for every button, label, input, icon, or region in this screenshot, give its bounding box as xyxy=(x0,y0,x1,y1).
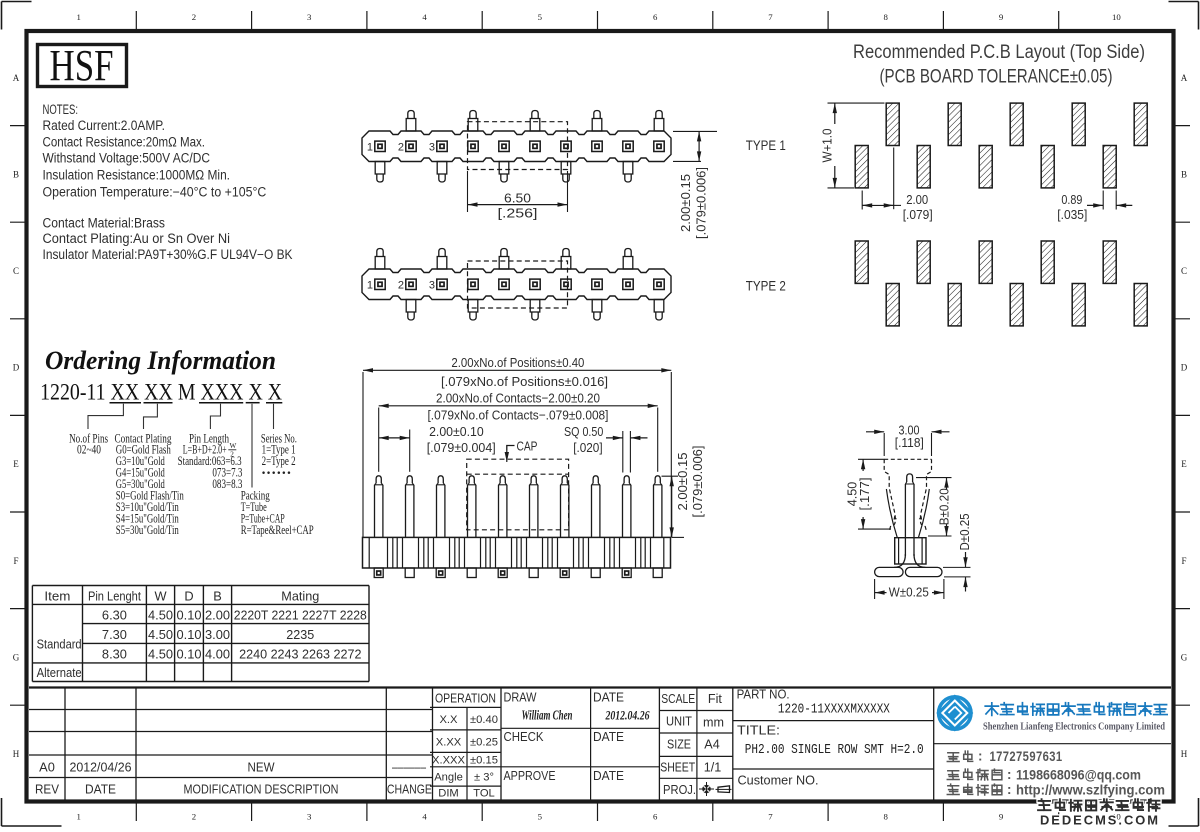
svg-text:B±0.20: B±0.20 xyxy=(938,488,952,525)
svg-text:X.XX: X.XX xyxy=(436,737,462,749)
svg-text:A: A xyxy=(13,73,20,83)
svg-text:TOL: TOL xyxy=(473,788,495,800)
svg-text:0.10: 0.10 xyxy=(177,646,202,661)
svg-text:8: 8 xyxy=(884,812,889,822)
svg-text:B: B xyxy=(213,589,222,604)
svg-text:3: 3 xyxy=(307,12,312,22)
svg-text:1/1: 1/1 xyxy=(704,761,722,775)
svg-text:OPERATION: OPERATION xyxy=(435,692,496,706)
svg-text:2.00xNo.of Contacts−2.00±0.20: 2.00xNo.of Contacts−2.00±0.20 xyxy=(436,390,600,405)
svg-text:±0.15: ±0.15 xyxy=(470,755,498,767)
svg-text:(PCB BOARD TOLERANCE±0.05): (PCB BOARD TOLERANCE±0.05) xyxy=(880,67,1113,88)
svg-text:3.00: 3.00 xyxy=(899,423,920,437)
svg-text:DATE: DATE xyxy=(85,782,116,797)
svg-text:7.30: 7.30 xyxy=(102,627,127,642)
svg-text:SIZE: SIZE xyxy=(667,738,691,752)
svg-text:NEW: NEW xyxy=(248,760,276,775)
svg-text:DATE: DATE xyxy=(593,729,624,744)
svg-text:5: 5 xyxy=(538,812,543,822)
svg-text:2: 2 xyxy=(398,142,404,154)
svg-text:±0.25: ±0.25 xyxy=(470,737,498,749)
svg-text:MODIFICATION DESCRIPTION: MODIFICATION DESCRIPTION xyxy=(184,782,339,797)
svg-text:Mating: Mating xyxy=(281,589,319,604)
svg-text:––––––: –––––– xyxy=(392,760,427,775)
svg-text:PROJ.: PROJ. xyxy=(663,783,696,797)
svg-text::: : xyxy=(978,749,983,764)
svg-text:[.079]: [.079] xyxy=(903,208,933,222)
svg-text:[.079±0.006]: [.079±0.006] xyxy=(691,446,705,518)
svg-text:CHECK: CHECK xyxy=(504,729,544,744)
svg-text:6.30: 6.30 xyxy=(102,608,127,623)
svg-text:R=Tape&Reel+CAP: R=Tape&Reel+CAP xyxy=(241,523,314,537)
svg-text:4.50: 4.50 xyxy=(148,627,173,642)
svg-text:Operation Temperature:−40°C to: Operation Temperature:−40°C to +105°C xyxy=(43,184,267,199)
svg-text:[.079xNo.of Contacts−.079±0.00: [.079xNo.of Contacts−.079±0.008] xyxy=(428,408,609,423)
svg-text:4.50: 4.50 xyxy=(148,608,173,623)
svg-text:DATE: DATE xyxy=(593,690,624,705)
svg-text:1198668096@qq.com: 1198668096@qq.com xyxy=(1016,766,1141,782)
svg-text:W: W xyxy=(154,589,167,604)
svg-text:D±0.25: D±0.25 xyxy=(958,513,972,550)
svg-text:W+1.0: W+1.0 xyxy=(821,128,835,162)
svg-text:TYPE 1: TYPE 1 xyxy=(746,138,786,153)
svg-text:NOTES:: NOTES: xyxy=(43,102,79,117)
svg-text:Shenzhen Lianfeng Electronics: Shenzhen Lianfeng Electronics Company Li… xyxy=(983,721,1165,732)
svg-text:2240 2243 2263 2272: 2240 2243 2263 2272 xyxy=(239,646,361,661)
svg-text:[.079±0.006]: [.079±0.006] xyxy=(695,167,709,239)
svg-text:William Chen: William Chen xyxy=(522,708,573,723)
svg-text:4.50: 4.50 xyxy=(148,646,173,661)
svg-text:7: 7 xyxy=(768,812,773,822)
svg-text:Recommended P.C.B Layout (Top: Recommended P.C.B Layout (Top Side) xyxy=(853,42,1145,63)
svg-text:X.XXX: X.XXX xyxy=(432,755,465,767)
svg-text:http://www.szlfying.com: http://www.szlfying.com xyxy=(1016,782,1165,797)
svg-text:8: 8 xyxy=(884,12,889,22)
svg-text:Contact Resistance:20mΩ Max.: Contact Resistance:20mΩ Max. xyxy=(43,134,206,149)
svg-text:1220-11 XX XX M XXX X X: 1220-11 XX XX M XXX X X xyxy=(40,379,282,404)
svg-text:Insulation Resistance:1000MΩ M: Insulation Resistance:1000MΩ Min. xyxy=(43,167,231,182)
svg-text:083=8.3: 083=8.3 xyxy=(212,477,242,491)
svg-text:2.00: 2.00 xyxy=(205,608,230,623)
svg-text:[.177]: [.177] xyxy=(858,478,872,511)
svg-text:2: 2 xyxy=(398,280,404,292)
svg-text:F: F xyxy=(1181,556,1186,566)
svg-text:1220-11XXXXMXXXXX: 1220-11XXXXMXXXXX xyxy=(778,703,890,718)
svg-text:H: H xyxy=(1181,749,1188,759)
svg-text:±0.40: ±0.40 xyxy=(470,714,498,726)
svg-text:4: 4 xyxy=(422,12,427,22)
svg-text:7: 7 xyxy=(768,12,773,22)
svg-text:UNIT: UNIT xyxy=(666,715,692,729)
svg-text:Contact Plating:Au or Sn Over: Contact Plating:Au or Sn Over Ni xyxy=(43,231,231,246)
svg-text:4.00: 4.00 xyxy=(205,646,230,661)
svg-text:0.89: 0.89 xyxy=(1061,193,1082,207)
svg-text:......: ...... xyxy=(262,461,292,478)
svg-text:D: D xyxy=(184,589,193,604)
svg-text:10: 10 xyxy=(1112,12,1121,22)
svg-text:X.X: X.X xyxy=(439,714,458,726)
svg-text:4: 4 xyxy=(422,812,427,822)
svg-text:Insulator Material:PA9T+30%G.F: Insulator Material:PA9T+30%G.F UL94V−O B… xyxy=(43,247,293,262)
svg-text:F: F xyxy=(13,556,18,566)
svg-text:DRAW: DRAW xyxy=(504,690,538,705)
svg-text:6.50: 6.50 xyxy=(504,192,531,206)
svg-text:SCALE: SCALE xyxy=(661,692,695,706)
svg-text:4.50: 4.50 xyxy=(845,482,859,507)
svg-text:S5=30u"Gold/Tin: S5=30u"Gold/Tin xyxy=(116,523,179,537)
svg-text:2: 2 xyxy=(192,812,196,822)
svg-text:[.079±0.004]: [.079±0.004] xyxy=(427,441,496,455)
svg-text:3: 3 xyxy=(429,280,435,292)
svg-text:REV: REV xyxy=(35,782,59,797)
svg-text:PH2.00 SINGLE ROW SMT H=2.0: PH2.00 SINGLE ROW SMT H=2.0 xyxy=(745,743,924,758)
svg-text:Alternate: Alternate xyxy=(37,665,82,680)
svg-text:CHANGE: CHANGE xyxy=(387,782,432,797)
svg-text:9: 9 xyxy=(999,812,1004,822)
svg-text:[.035]: [.035] xyxy=(1057,208,1087,222)
svg-text:2.00±0.10: 2.00±0.10 xyxy=(429,425,484,439)
svg-text:G: G xyxy=(13,652,20,662)
svg-text:W: W xyxy=(230,442,237,450)
svg-text:0.10: 0.10 xyxy=(177,608,202,623)
svg-text:Standard: Standard xyxy=(37,636,82,651)
svg-text:2220T 2221 2227T 2228: 2220T 2221 2227T 2228 xyxy=(234,608,367,623)
svg-text:1: 1 xyxy=(367,280,373,292)
svg-text:TYPE 2: TYPE 2 xyxy=(746,279,786,294)
svg-text:[.118]: [.118] xyxy=(895,436,924,450)
svg-text:Pin Lenght: Pin Lenght xyxy=(88,589,141,604)
svg-text:SQ 0.50: SQ 0.50 xyxy=(564,425,603,439)
svg-text:Contact Material:Brass: Contact Material:Brass xyxy=(43,216,166,231)
svg-text:1: 1 xyxy=(76,812,80,822)
svg-text:HSF: HSF xyxy=(50,41,114,90)
svg-text:Item: Item xyxy=(44,589,70,604)
svg-text:± 3°: ± 3° xyxy=(474,772,494,784)
svg-text:[.256]: [.256] xyxy=(498,206,538,220)
svg-text:6: 6 xyxy=(653,12,658,22)
svg-text:C: C xyxy=(1181,266,1187,276)
svg-text:Ordering Information: Ordering Information xyxy=(45,346,276,375)
svg-text:E: E xyxy=(13,459,19,469)
svg-text:DIM: DIM xyxy=(438,788,459,800)
svg-text:2.00xNo.of Positions±0.40: 2.00xNo.of Positions±0.40 xyxy=(451,355,584,370)
svg-text:B: B xyxy=(13,169,19,179)
svg-text:D: D xyxy=(13,363,20,373)
svg-text:2.00±0.15: 2.00±0.15 xyxy=(679,174,693,232)
svg-text:2.00: 2.00 xyxy=(906,193,928,207)
svg-text:PART NO.: PART NO. xyxy=(737,687,790,702)
svg-text:D: D xyxy=(1181,363,1188,373)
svg-text:W±0.25: W±0.25 xyxy=(889,586,929,600)
svg-text:A0: A0 xyxy=(39,760,55,775)
svg-text:CAP: CAP xyxy=(517,438,538,453)
svg-text:Customer NO.: Customer NO. xyxy=(738,773,819,788)
svg-text:A: A xyxy=(1181,73,1188,83)
svg-text:mm: mm xyxy=(703,716,724,730)
svg-text:DATE: DATE xyxy=(593,768,624,783)
svg-text:Fit: Fit xyxy=(708,692,722,706)
svg-text:H: H xyxy=(13,749,20,759)
svg-text:Withstand Voltage:500V AC/DC: Withstand Voltage:500V AC/DC xyxy=(43,151,211,166)
svg-text:6: 6 xyxy=(653,812,658,822)
svg-text:APPROVE: APPROVE xyxy=(504,768,556,783)
svg-text::: : xyxy=(1007,767,1012,782)
svg-text:DEDECMS.COM: DEDECMS.COM xyxy=(1040,813,1160,828)
svg-text:2012.04.26: 2012.04.26 xyxy=(605,708,650,723)
svg-text:1: 1 xyxy=(76,12,80,22)
svg-text:G: G xyxy=(1181,652,1188,662)
svg-text:8.30: 8.30 xyxy=(102,646,127,661)
svg-text::: : xyxy=(1007,782,1012,797)
svg-text:SHEET: SHEET xyxy=(660,761,695,775)
svg-text:3: 3 xyxy=(429,142,435,154)
svg-text:[.020]: [.020] xyxy=(573,441,602,455)
svg-text:3: 3 xyxy=(307,812,312,822)
svg-text:0.10: 0.10 xyxy=(177,627,202,642)
svg-text:02~40: 02~40 xyxy=(77,443,101,457)
svg-text:9: 9 xyxy=(999,12,1004,22)
svg-text:5: 5 xyxy=(538,12,543,22)
svg-text:2.00±0.15: 2.00±0.15 xyxy=(676,452,690,510)
svg-text:17727597631: 17727597631 xyxy=(990,748,1063,764)
svg-text:2: 2 xyxy=(192,12,196,22)
svg-text:[.079xNo.of Positions±0.016]: [.079xNo.of Positions±0.016] xyxy=(441,374,608,389)
svg-text:A4: A4 xyxy=(704,738,719,752)
svg-text:3.00: 3.00 xyxy=(205,627,230,642)
svg-text:C: C xyxy=(13,266,19,276)
svg-text:Rated Current:2.0AMP.: Rated Current:2.0AMP. xyxy=(43,118,166,133)
svg-text:Angle: Angle xyxy=(434,772,463,784)
svg-text:2012/04/26: 2012/04/26 xyxy=(70,760,132,775)
svg-text:TITLE:: TITLE: xyxy=(737,723,780,738)
svg-text:B: B xyxy=(1181,169,1187,179)
svg-text:2235: 2235 xyxy=(286,627,314,642)
svg-text:1: 1 xyxy=(367,142,373,154)
svg-text:E: E xyxy=(1181,459,1187,469)
